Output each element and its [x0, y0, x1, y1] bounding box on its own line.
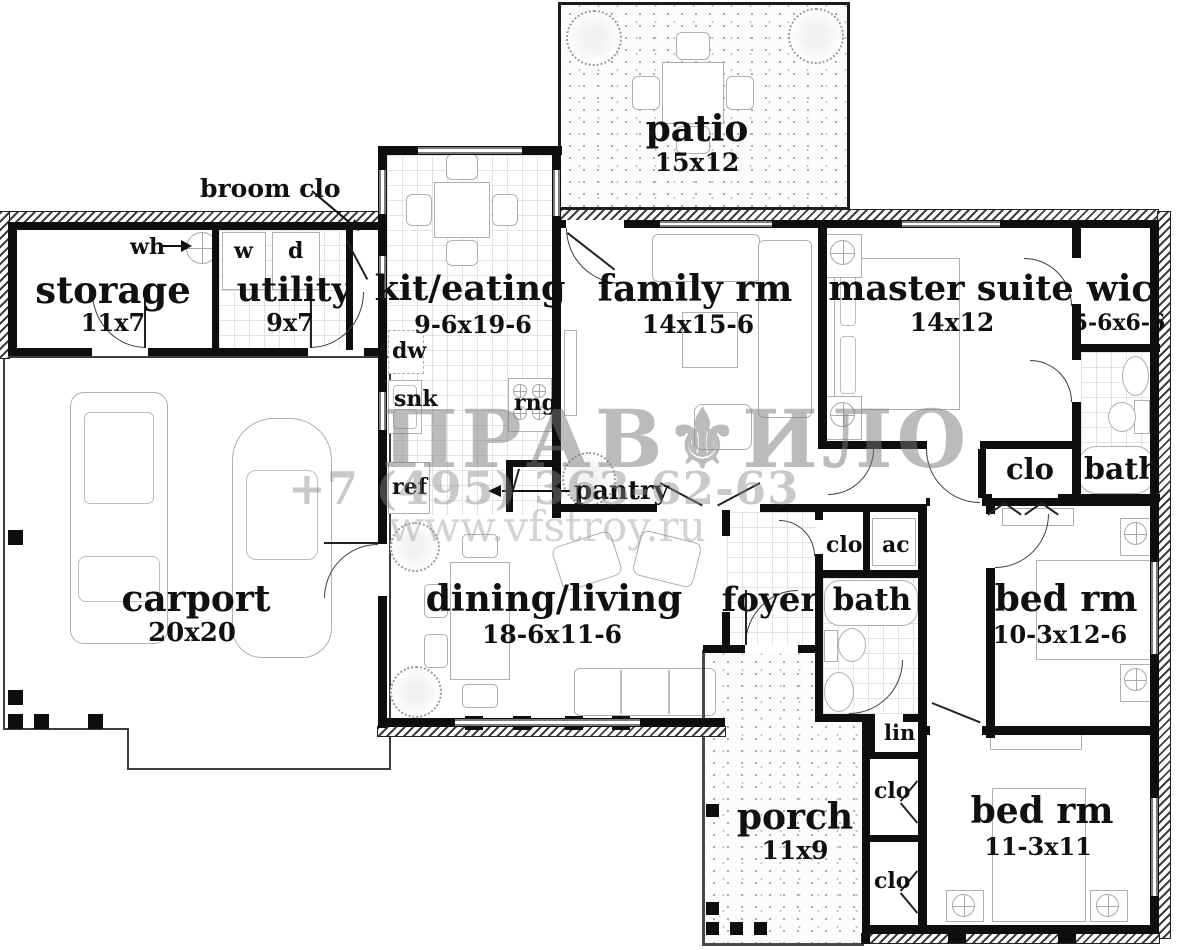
- wall: [815, 504, 823, 520]
- porch-post: [706, 804, 719, 817]
- snk-label: snk: [394, 386, 438, 412]
- ac-label: ac: [882, 532, 910, 558]
- wh-arrow-line: [162, 245, 182, 247]
- clo-hall-lower-label: clo: [874, 868, 910, 894]
- wh-arrow-head: [181, 240, 192, 252]
- storage-dims: 11x7: [81, 308, 145, 337]
- tree-icon: [566, 10, 622, 66]
- master-suite-dims: 14x12: [910, 308, 995, 337]
- porch-post: [706, 902, 719, 915]
- porch-floor-upper: [705, 653, 815, 718]
- bifold-door: [900, 802, 918, 823]
- wall: [506, 460, 561, 467]
- nook-chair: [446, 154, 478, 180]
- family-rm-dims: 14x15-6: [642, 310, 754, 339]
- family-rm-label: family rm: [598, 268, 793, 310]
- pantry-label: pantry: [574, 476, 669, 506]
- car-roof: [246, 470, 318, 560]
- door-gap: [1072, 360, 1081, 402]
- sink-basin: [393, 409, 417, 429]
- floor-plan: patio 15x12 storage 11x7 utility 9x7 kit…: [0, 0, 1200, 950]
- window: [418, 147, 522, 154]
- patio-chair: [676, 32, 710, 60]
- kit-eating-label: kit/eating: [375, 268, 566, 309]
- rng-label: rng: [514, 390, 557, 416]
- dryer-label: d: [288, 238, 303, 264]
- carport-post: [8, 690, 23, 705]
- utility-label: utility: [237, 270, 352, 310]
- bed-rm-right-label: bed rm: [995, 578, 1138, 620]
- sofa: [574, 668, 716, 716]
- porch-post: [706, 922, 719, 935]
- wall: [868, 752, 925, 759]
- patio-dims: 15x12: [655, 148, 740, 177]
- toilet-bowl: [1108, 402, 1136, 432]
- car-roof: [84, 412, 154, 504]
- dining-living-label: dining/living: [426, 578, 682, 620]
- wic-dims: 5-6x6-6: [1073, 310, 1166, 336]
- window: [1151, 798, 1158, 896]
- wall: [818, 441, 927, 449]
- utility-dims: 9x7: [266, 308, 314, 337]
- wall: [760, 504, 820, 512]
- door-arc-master: [926, 449, 980, 503]
- armchair: [694, 404, 752, 450]
- porch-label: porch: [737, 796, 853, 838]
- dining-chair: [462, 684, 498, 708]
- wall: [560, 220, 1158, 228]
- door-gap: [566, 220, 624, 228]
- window: [902, 221, 1000, 227]
- carport-outline: [3, 356, 391, 770]
- bed-rm-right-dims: 10-3x12-6: [993, 620, 1127, 649]
- kit-eating-dims: 9-6x19-6: [414, 310, 532, 339]
- wall: [818, 228, 827, 449]
- ref-label: ref: [392, 474, 427, 500]
- wall: [862, 835, 924, 842]
- nook-chair: [446, 240, 478, 266]
- window-post: [948, 928, 966, 943]
- window: [379, 392, 386, 430]
- wall: [980, 441, 1072, 449]
- lamp-icon: [1124, 522, 1147, 545]
- wall: [862, 722, 870, 944]
- toilet-tank: [824, 630, 838, 662]
- door-arc-bath-master: [1030, 360, 1072, 402]
- wall: [703, 645, 745, 653]
- clo-foyer-label: clo: [826, 532, 862, 558]
- lamp-icon: [1096, 894, 1119, 917]
- sofa-cushion-line: [620, 670, 622, 714]
- wall: [722, 510, 730, 536]
- door-gap: [986, 514, 995, 568]
- bath-master-label: bath: [1084, 452, 1160, 487]
- wall: [8, 222, 380, 230]
- toilet-bowl: [838, 628, 866, 662]
- wall-hatch-bottom-right: [862, 934, 1159, 943]
- carport-dims: 20x20: [148, 618, 236, 648]
- carport-notch: [3, 728, 129, 770]
- wall: [815, 714, 869, 722]
- wall: [8, 222, 17, 356]
- nook-chair: [406, 194, 432, 226]
- dining-chair: [462, 534, 498, 558]
- lamp-icon: [952, 894, 975, 917]
- master-suite-label: master suite: [828, 268, 1073, 309]
- carport-label: carport: [122, 578, 271, 620]
- clo-hall-upper-label: clo: [874, 778, 910, 804]
- double-door-leaf: [717, 482, 760, 506]
- washer-label: w: [234, 238, 253, 264]
- wic-label: wic: [1087, 268, 1154, 310]
- pantry-arrow-line: [502, 490, 570, 492]
- wall: [862, 925, 1159, 934]
- bed-rm-bottom-dims: 11-3x11: [984, 832, 1092, 861]
- lin-label: lin: [884, 720, 915, 745]
- lamp-icon: [830, 402, 855, 427]
- wall: [863, 512, 870, 574]
- clo-master-label: clo: [1006, 452, 1054, 486]
- wall: [378, 146, 387, 728]
- lamp-icon: [1124, 668, 1147, 691]
- window: [1151, 562, 1158, 654]
- pillow: [840, 336, 856, 394]
- patio-chair: [632, 76, 660, 110]
- wall: [1072, 344, 1160, 352]
- door-gap: [930, 726, 982, 735]
- carport-post: [8, 714, 23, 729]
- tree-icon: [390, 666, 442, 718]
- bifold-door: [900, 892, 918, 913]
- dining-living-dims: 18-6x11-6: [482, 620, 622, 649]
- storage-label: storage: [35, 268, 190, 312]
- wh-label: wh: [130, 234, 165, 260]
- door-leaf: [324, 542, 378, 544]
- window: [660, 221, 772, 227]
- wall: [212, 228, 219, 350]
- tv-cabinet: [564, 330, 577, 416]
- toilet-tank: [1134, 400, 1150, 434]
- window-post: [1058, 928, 1076, 943]
- window: [553, 170, 560, 216]
- carport-post: [8, 530, 23, 545]
- porch-edge-left: [702, 650, 705, 946]
- door-gap: [378, 544, 387, 596]
- wall: [8, 348, 92, 356]
- wall: [148, 348, 308, 356]
- nook-chair: [492, 194, 518, 226]
- foyer-label: foyer: [722, 580, 819, 620]
- window: [379, 170, 386, 214]
- carport-post: [34, 714, 49, 729]
- bed-rm-bottom-label: bed rm: [971, 790, 1114, 832]
- sofa-sectional: [758, 240, 812, 418]
- pantry-arrow-head: [488, 485, 501, 497]
- dining-chair: [424, 634, 448, 668]
- patio-chair: [726, 76, 754, 110]
- nook-table: [434, 182, 490, 238]
- bath-mid-label: bath: [833, 582, 912, 618]
- wall: [815, 570, 922, 578]
- porch-dims: 11x9: [761, 836, 828, 865]
- wall-hatch-bottom: [378, 727, 725, 736]
- tree-icon: [788, 8, 844, 64]
- door-leaf: [932, 702, 981, 723]
- sofa-cushion-line: [668, 670, 670, 714]
- porch-post: [730, 922, 743, 935]
- tree-icon: [390, 522, 440, 572]
- window: [455, 719, 640, 726]
- wall: [815, 504, 926, 512]
- bathroom-sink: [1122, 356, 1149, 396]
- porch-post: [754, 922, 767, 935]
- carport-post: [88, 714, 103, 729]
- lamp-icon: [830, 240, 855, 265]
- porch-edge-bottom: [702, 943, 864, 946]
- patio-label: patio: [646, 108, 749, 150]
- dw-label: dw: [392, 338, 426, 364]
- door-arc-hall: [828, 449, 874, 495]
